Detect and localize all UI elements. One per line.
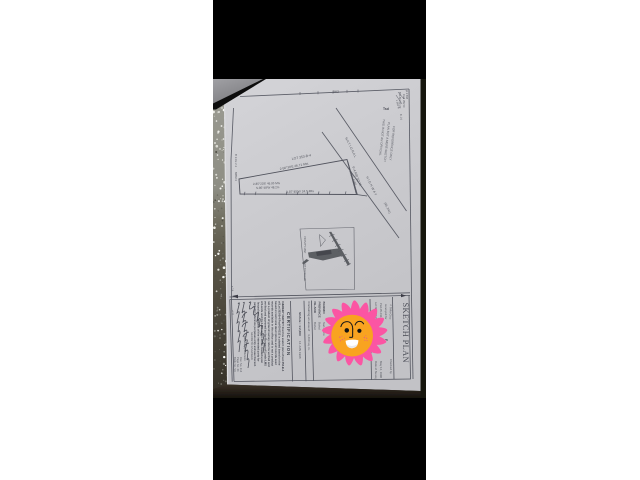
svg-text:4,460 sq. m.: 4,460 sq. m.: [307, 334, 311, 351]
svg-text:J. Dela Cruz: J. Dela Cruz: [388, 304, 393, 320]
svg-text:Issued upon request of the int: Issued upon request of the interested pa…: [257, 302, 261, 362]
svg-text:Chief, Surveys Division: Chief, Surveys Division: [243, 334, 247, 361]
svg-text:SCALE : 1:2,000: SCALE : 1:2,000: [298, 312, 302, 336]
svg-text:May 12, 1998: May 12, 1998: [379, 361, 383, 378]
svg-text:Bohol: Bohol: [318, 322, 322, 330]
svg-text:Checked by: Checked by: [389, 359, 393, 374]
svg-text:d 21: d 21: [231, 310, 235, 316]
svg-text:records available in this offi: records available in this office and is …: [271, 301, 275, 366]
svg-text:of Lands and the LMS region of: of Lands and the LMS region office. Issu…: [260, 301, 264, 363]
svg-text:Tsd: Tsd: [383, 107, 389, 111]
svg-text:BARRIO: BARRIO: [322, 302, 326, 315]
svg-text:not a product of ground survey: not a product of ground survey returns v…: [267, 301, 271, 367]
svg-text:VICINITY MAP: VICINITY MAP: [303, 236, 307, 254]
svg-text:Book No. VII: Book No. VII: [233, 357, 237, 372]
svg-text:Bohol: Bohol: [313, 322, 317, 330]
svg-text:surveyed for: surveyed for: [384, 304, 388, 319]
svg-text:Date of Survey: Date of Survey: [374, 361, 378, 380]
svg-text:PROVINCE: PROVINCE: [318, 302, 322, 318]
svg-text:GEODETIC ENGINEER: GEODETIC ENGINEER: [250, 332, 254, 360]
svg-text:MBM 3: MBM 3: [234, 172, 238, 181]
svg-text:verified and approved by the B: verified and approved by the Bureau of L…: [264, 301, 268, 366]
svg-text:B 14 E 2.1: B 14 E 2.1: [234, 154, 238, 168]
svg-text:x 14: x 14: [231, 286, 235, 292]
svg-text:Containing an area of: Containing an area of: [307, 302, 311, 332]
svg-text:562: 562: [333, 90, 339, 94]
svg-text:S-85°48'W 48.2m: S-85°48'W 48.2m: [256, 185, 280, 190]
svg-text:NOT TO SCALE: NOT TO SCALE: [303, 262, 307, 281]
svg-text:of Lot 353-B-4 Psd-05-0312 is: of Lot 353-B-4 Psd-05-0312 is plotted ba…: [278, 301, 282, 366]
svg-text:pt 2 BM: pt 2 BM: [405, 90, 409, 99]
svg-text:I HEREBY CERTIFY that this ske: I HEREBY CERTIFY that this sketch plan o…: [281, 301, 285, 372]
svg-text:based on technical description: based on technical descriptions and reco…: [274, 301, 278, 365]
svg-text:16 JUN 1998: 16 JUN 1998: [298, 341, 302, 359]
svg-text:CERTIFICATION: CERTIFICATION: [286, 312, 291, 356]
svg-text:ISLAND: ISLAND: [313, 302, 317, 314]
svg-text:SKETCH PLAN: SKETCH PLAN: [401, 303, 410, 363]
svg-text:Psd-05-0312: Psd-05-0312: [379, 303, 383, 319]
svg-text:B. 21: B. 21: [399, 114, 404, 121]
